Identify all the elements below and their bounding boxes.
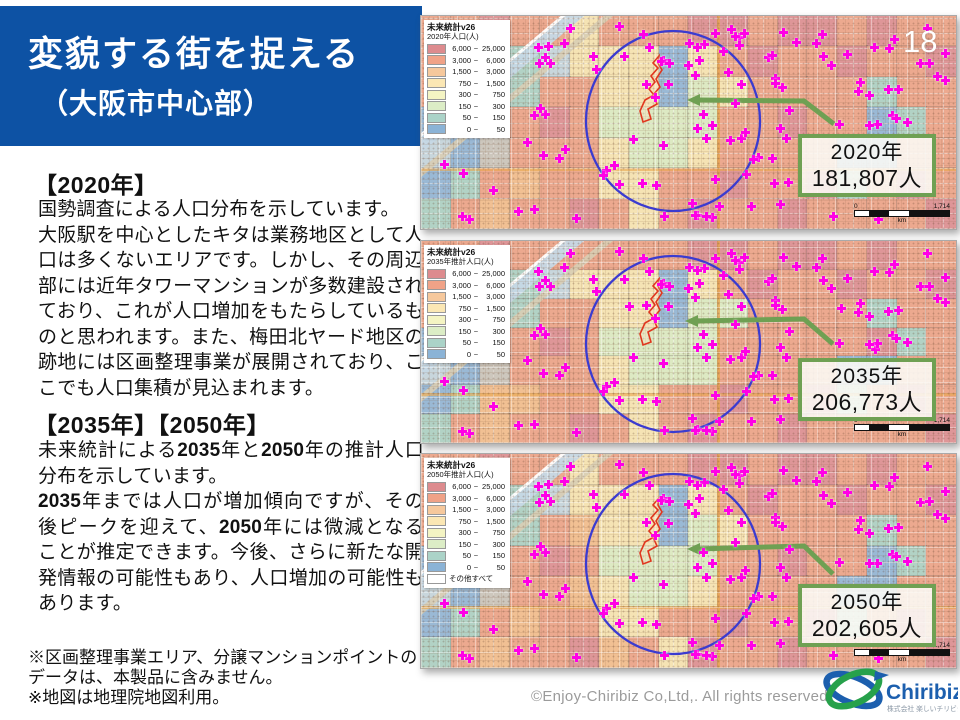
legend-range-to: 1,500 xyxy=(481,79,505,88)
condo-point-marker xyxy=(719,271,728,280)
legend-swatch xyxy=(427,574,446,584)
condo-point-marker xyxy=(873,559,882,568)
condo-point-marker xyxy=(726,136,735,145)
legend-row: 300~750 xyxy=(427,527,507,539)
condo-point-marker xyxy=(735,479,744,488)
condo-point-marker xyxy=(489,625,498,634)
condo-point-marker xyxy=(530,205,539,214)
condo-point-marker xyxy=(458,427,467,436)
condo-point-marker xyxy=(555,592,564,601)
condo-point-marker xyxy=(560,39,569,48)
scale-bar: 0 1,714 km xyxy=(854,203,950,224)
condo-point-marker xyxy=(856,516,865,525)
legend-range-to: 1,500 xyxy=(481,304,505,313)
condo-point-marker xyxy=(884,524,893,533)
condo-point-marker xyxy=(843,488,852,497)
legend-other-label: その他すべて xyxy=(449,573,493,584)
condo-point-marker xyxy=(684,61,693,70)
condo-point-marker xyxy=(652,181,661,190)
legend-swatch xyxy=(427,269,446,279)
legend-row: 150~300 xyxy=(427,539,507,551)
condo-point-marker xyxy=(610,161,619,170)
callout-year: 2035年 xyxy=(831,365,904,389)
condo-point-marker xyxy=(870,481,879,490)
slide-title: 変貌する街を捉える xyxy=(28,26,360,77)
condo-point-marker xyxy=(530,644,539,653)
condo-point-marker xyxy=(534,43,543,52)
map-2050: 未来統計v26 2050年推計人口(人) 6,000~25,0003,000~6… xyxy=(420,453,957,669)
condo-point-marker xyxy=(941,76,950,85)
condo-point-marker xyxy=(894,523,903,532)
condo-point-marker xyxy=(784,178,793,187)
condo-point-marker xyxy=(768,51,777,60)
condo-point-marker xyxy=(776,415,785,424)
legend-range-to: 6,000 xyxy=(481,494,505,503)
condo-point-marker xyxy=(827,499,836,508)
condo-point-marker xyxy=(843,274,852,283)
condo-point-marker xyxy=(865,91,874,100)
condo-point-marker xyxy=(514,421,523,430)
condo-point-marker xyxy=(530,420,539,429)
condo-point-marker xyxy=(865,312,874,321)
population-callout: 2020年 181,807人 xyxy=(798,134,936,197)
condo-point-marker xyxy=(691,509,700,518)
condo-point-marker xyxy=(615,619,624,628)
condo-point-marker xyxy=(747,202,756,211)
condo-point-marker xyxy=(708,121,717,130)
condo-point-marker xyxy=(770,395,779,404)
legend-swatch xyxy=(427,505,446,515)
scale-ratio: 1,714 xyxy=(934,642,950,649)
legend-swatch xyxy=(427,67,446,77)
condo-point-marker xyxy=(659,359,668,368)
section-2020-heading: 【2020年】 xyxy=(34,166,158,200)
legend-rows: 6,000~25,0003,000~6,0001,500~3,000750~1,… xyxy=(427,43,507,135)
condo-point-marker xyxy=(737,80,746,89)
section-2020-body: 国勢調査による人口分布を示しています。大阪駅を中心としたキタは業務地区として人口… xyxy=(38,197,424,401)
legend-range-to: 25,000 xyxy=(481,269,505,278)
condo-point-marker xyxy=(741,566,750,575)
condo-point-marker xyxy=(784,394,793,403)
legend-swatch xyxy=(427,280,446,290)
condo-point-marker xyxy=(458,651,467,660)
condo-point-marker xyxy=(566,462,575,471)
legend-range-from: 150 xyxy=(449,102,471,111)
condo-point-marker xyxy=(854,87,863,96)
legend-row: 300~750 xyxy=(427,314,507,326)
condo-point-marker xyxy=(592,65,601,74)
condo-point-marker xyxy=(776,639,785,648)
scale-bar-graphic xyxy=(854,210,950,217)
condo-point-marker xyxy=(819,491,828,500)
condo-point-marker xyxy=(890,35,899,44)
legend-range-separator: ~ xyxy=(471,56,481,65)
condo-point-marker xyxy=(695,494,704,503)
condo-point-marker xyxy=(776,563,785,572)
legend-range-to: 50 xyxy=(481,125,505,134)
condo-point-marker xyxy=(715,202,724,211)
chiribiz-logo: Chiribiz 株式会社 楽しいチリビジ xyxy=(820,662,958,718)
condo-point-marker xyxy=(711,467,720,476)
condo-point-marker xyxy=(749,155,758,164)
condo-point-marker xyxy=(693,266,702,275)
condo-point-marker xyxy=(771,301,780,310)
condo-point-marker xyxy=(854,308,863,317)
condo-point-marker xyxy=(691,426,700,435)
condo-point-marker xyxy=(660,651,669,660)
condo-point-marker xyxy=(854,525,863,534)
condo-point-marker xyxy=(711,29,720,38)
legend-range-to: 300 xyxy=(481,327,505,336)
condo-point-marker xyxy=(615,396,624,405)
legend-range-from: 3,000 xyxy=(449,494,471,503)
legend-range-from: 6,000 xyxy=(449,482,471,491)
condo-point-marker xyxy=(629,135,638,144)
legend-range-separator: ~ xyxy=(471,102,481,111)
legend-range-from: 50 xyxy=(449,338,471,347)
condo-point-marker xyxy=(870,43,879,52)
condo-point-marker xyxy=(892,114,901,123)
condo-point-marker xyxy=(560,477,569,486)
legend-range-from: 300 xyxy=(449,315,471,324)
condo-point-marker xyxy=(560,263,569,272)
condo-point-marker xyxy=(693,481,702,490)
legend-row-other: その他すべて xyxy=(427,573,507,585)
condo-point-marker xyxy=(776,343,785,352)
legend-range-separator: ~ xyxy=(471,304,481,313)
legend-swatch xyxy=(427,90,446,100)
condo-point-marker xyxy=(768,371,777,380)
condo-point-marker xyxy=(539,590,548,599)
condo-point-marker xyxy=(711,254,720,263)
legend-range-to: 750 xyxy=(481,315,505,324)
condo-point-marker xyxy=(695,279,704,288)
footnotes: ※区画整理事業エリア、分譲マンションポイントのデータは、本製品に含みません。※地… xyxy=(28,648,428,708)
condo-point-marker xyxy=(740,467,749,476)
legend-range-from: 0 xyxy=(449,125,471,134)
legend-row: 50~150 xyxy=(427,112,507,124)
condo-point-marker xyxy=(749,594,758,603)
condo-point-marker xyxy=(715,417,724,426)
condo-point-marker xyxy=(941,49,950,58)
condo-point-marker xyxy=(645,43,654,52)
condo-point-marker xyxy=(737,302,746,311)
scale-unit: km xyxy=(854,656,950,663)
slide: 変貌する街を捉える （大阪市中心部） 18 【2020年】 国勢調査による人口分… xyxy=(0,0,960,720)
condo-point-marker xyxy=(892,552,901,561)
condo-point-marker xyxy=(925,59,934,68)
condo-point-marker xyxy=(742,609,751,618)
legend-swatch xyxy=(427,78,446,88)
legend-range-separator: ~ xyxy=(471,269,481,278)
legend-swatch xyxy=(427,113,446,123)
logo-swirl-icon xyxy=(822,665,889,714)
legend-rows: 6,000~25,0003,000~6,0001,500~3,000750~1,… xyxy=(427,481,507,585)
legend-range-from: 0 xyxy=(449,350,471,359)
legend-range-separator: ~ xyxy=(471,563,481,572)
condo-point-marker xyxy=(742,387,751,396)
condo-point-marker xyxy=(885,44,894,53)
condo-point-marker xyxy=(665,59,674,68)
condo-point-marker xyxy=(702,651,711,660)
condo-point-marker xyxy=(693,124,702,133)
condo-point-marker xyxy=(731,320,740,329)
condo-point-marker xyxy=(785,327,794,336)
condo-point-marker xyxy=(835,558,844,567)
legend-row: 0~50 xyxy=(427,124,507,136)
condo-point-marker xyxy=(440,377,449,386)
legend-swatch xyxy=(427,493,446,503)
legend-range-to: 300 xyxy=(481,540,505,549)
legend-row: 0~50 xyxy=(427,349,507,361)
condo-point-marker xyxy=(555,371,564,380)
condo-point-marker xyxy=(534,267,543,276)
legend-range-from: 1,500 xyxy=(449,505,471,514)
condo-point-marker xyxy=(651,531,660,540)
legend-title: 未来統計v26 xyxy=(427,247,507,257)
condo-point-marker xyxy=(779,253,788,262)
legend-row: 3,000~6,000 xyxy=(427,493,507,505)
legend-range-separator: ~ xyxy=(471,292,481,301)
legend-range-from: 750 xyxy=(449,79,471,88)
condo-point-marker xyxy=(784,617,793,626)
condo-point-marker xyxy=(699,548,708,557)
legend-row: 150~300 xyxy=(427,101,507,113)
condo-point-marker xyxy=(539,151,548,160)
condo-point-marker xyxy=(724,290,733,299)
condo-point-marker xyxy=(865,529,874,538)
legend-swatch xyxy=(427,551,446,561)
condo-point-marker xyxy=(779,466,788,475)
legend-range-from: 150 xyxy=(449,540,471,549)
condo-point-marker xyxy=(664,80,673,89)
legend-range-separator: ~ xyxy=(471,551,481,560)
condo-point-marker xyxy=(458,212,467,221)
condo-point-marker xyxy=(768,592,777,601)
condo-point-marker xyxy=(699,110,708,119)
condo-point-marker xyxy=(642,80,651,89)
condo-point-marker xyxy=(782,573,791,582)
legend-range-to: 150 xyxy=(481,338,505,347)
condo-point-marker xyxy=(731,99,740,108)
logo-subtext: 株式会社 楽しいチリビジ xyxy=(887,704,958,713)
scale-bar-graphic xyxy=(854,649,950,656)
condo-point-marker xyxy=(642,518,651,527)
legend-range-from: 3,000 xyxy=(449,56,471,65)
legend-range-to: 6,000 xyxy=(481,56,505,65)
condo-point-marker xyxy=(771,518,780,527)
condo-point-marker xyxy=(923,462,932,471)
legend-range-to: 150 xyxy=(481,551,505,560)
condo-point-marker xyxy=(865,121,874,130)
condo-point-marker xyxy=(489,402,498,411)
condo-point-marker xyxy=(735,265,744,274)
condo-point-marker xyxy=(544,42,553,51)
condo-point-marker xyxy=(523,138,532,147)
condo-point-marker xyxy=(639,468,648,477)
condo-point-marker xyxy=(925,497,934,506)
condo-point-marker xyxy=(566,24,575,33)
condo-point-marker xyxy=(711,175,720,184)
condo-point-marker xyxy=(885,482,894,491)
condo-point-marker xyxy=(702,353,711,362)
map-2035: 未来統計v26 2035年推計人口(人) 6,000~25,0003,000~6… xyxy=(420,240,957,444)
condo-point-marker xyxy=(615,180,624,189)
condo-point-marker xyxy=(544,480,553,489)
legend-swatch xyxy=(427,516,446,526)
condo-point-marker xyxy=(620,490,629,499)
condo-point-marker xyxy=(572,214,581,223)
condo-point-marker xyxy=(523,577,532,586)
section-2035-2050-heading: 【2035年】【2050年】 xyxy=(34,406,270,440)
condo-point-marker xyxy=(541,276,550,285)
condo-point-marker xyxy=(695,56,704,65)
callout-population: 202,605人 xyxy=(812,615,922,641)
condo-point-marker xyxy=(691,650,700,659)
legend-row: 750~1,500 xyxy=(427,516,507,528)
condo-point-marker xyxy=(489,186,498,195)
condo-point-marker xyxy=(615,460,624,469)
condo-point-marker xyxy=(660,212,669,221)
condo-point-marker xyxy=(719,485,728,494)
condo-point-marker xyxy=(835,120,844,129)
condo-point-marker xyxy=(589,52,598,61)
legend-range-separator: ~ xyxy=(471,327,481,336)
page-number: 18 xyxy=(903,24,937,60)
condo-point-marker xyxy=(933,510,942,519)
condo-point-marker xyxy=(835,339,844,348)
condo-point-marker xyxy=(726,575,735,584)
condo-point-marker xyxy=(768,489,777,498)
condo-point-marker xyxy=(818,468,827,477)
condo-point-marker xyxy=(440,599,449,608)
condo-point-marker xyxy=(941,514,950,523)
condo-point-marker xyxy=(747,417,756,426)
condo-point-marker xyxy=(856,78,865,87)
condo-point-marker xyxy=(589,490,598,499)
condo-point-marker xyxy=(693,343,702,352)
condo-point-marker xyxy=(925,282,934,291)
condo-point-marker xyxy=(770,618,779,627)
condo-point-marker xyxy=(536,104,545,113)
legend-range-from: 50 xyxy=(449,113,471,122)
condo-point-marker xyxy=(726,355,735,364)
callout-year: 2050年 xyxy=(831,591,904,615)
logo-text: Chiribiz xyxy=(886,681,958,704)
legend-range-to: 50 xyxy=(481,350,505,359)
legend-swatch xyxy=(427,303,446,313)
legend-subtitle: 2035年推計人口(人) xyxy=(427,257,507,266)
legend-rows: 6,000~25,0003,000~6,0001,500~3,000750~1,… xyxy=(427,268,507,360)
legend-range-from: 50 xyxy=(449,551,471,560)
legend-range-from: 1,500 xyxy=(449,292,471,301)
legend-row: 6,000~25,000 xyxy=(427,481,507,493)
condo-point-marker xyxy=(740,29,749,38)
condo-point-marker xyxy=(572,653,581,662)
condo-point-marker xyxy=(610,599,619,608)
condo-point-marker xyxy=(664,302,673,311)
condo-point-marker xyxy=(903,118,912,127)
legend-range-from: 150 xyxy=(449,327,471,336)
condo-point-marker xyxy=(731,538,740,547)
condo-point-marker xyxy=(629,353,638,362)
legend-range-from: 3,000 xyxy=(449,281,471,290)
legend-range-separator: ~ xyxy=(471,482,481,491)
legend-row: 300~750 xyxy=(427,89,507,101)
condo-point-marker xyxy=(642,301,651,310)
condo-point-marker xyxy=(610,378,619,387)
condo-point-marker xyxy=(459,608,468,617)
condo-point-marker xyxy=(555,154,564,163)
condo-point-marker xyxy=(660,426,669,435)
condo-point-marker xyxy=(719,47,728,56)
condo-point-marker xyxy=(741,128,750,137)
legend-range-separator: ~ xyxy=(471,540,481,549)
condo-point-marker xyxy=(785,545,794,554)
condo-point-marker xyxy=(933,72,942,81)
condo-point-marker xyxy=(708,340,717,349)
condo-point-marker xyxy=(459,169,468,178)
condo-point-marker xyxy=(629,573,638,582)
condo-point-marker xyxy=(702,426,711,435)
legend-range-separator: ~ xyxy=(471,281,481,290)
condo-point-marker xyxy=(534,482,543,491)
legend-range-separator: ~ xyxy=(471,505,481,514)
condo-point-marker xyxy=(941,487,950,496)
condo-point-marker xyxy=(651,314,660,323)
legend-swatch xyxy=(427,326,446,336)
condo-point-marker xyxy=(819,276,828,285)
legend-range-separator: ~ xyxy=(471,517,481,526)
legend-row: 150~300 xyxy=(427,326,507,338)
condo-point-marker xyxy=(702,573,711,582)
condo-point-marker xyxy=(620,275,629,284)
scale-ratio: 1,714 xyxy=(934,203,950,210)
condo-point-marker xyxy=(782,353,791,362)
legend-swatch xyxy=(427,528,446,538)
legend-range-to: 25,000 xyxy=(481,44,505,53)
condo-point-marker xyxy=(749,372,758,381)
condo-point-marker xyxy=(770,179,779,188)
condo-point-marker xyxy=(592,503,601,512)
legend-row: 50~150 xyxy=(427,337,507,349)
scale-bar-graphic xyxy=(854,424,950,431)
condo-point-marker xyxy=(941,298,950,307)
condo-point-marker xyxy=(638,395,647,404)
slide-subtitle: （大阪市中心部） xyxy=(40,82,272,122)
legend-row: 50~150 xyxy=(427,550,507,562)
legend-row: 0~50 xyxy=(427,562,507,574)
condo-point-marker xyxy=(440,160,449,169)
legend-range-to: 6,000 xyxy=(481,281,505,290)
condo-point-marker xyxy=(639,254,648,263)
condo-point-marker xyxy=(541,491,550,500)
legend-swatch xyxy=(427,101,446,111)
legend-range-from: 0 xyxy=(449,563,471,572)
legend-range-to: 150 xyxy=(481,113,505,122)
legend-range-from: 750 xyxy=(449,517,471,526)
condo-point-marker xyxy=(792,476,801,485)
condo-point-marker xyxy=(514,646,523,655)
copyright: ©Enjoy-Chiribiz Co,Ltd,. All rights rese… xyxy=(531,688,832,705)
condo-point-marker xyxy=(638,179,647,188)
condo-point-marker xyxy=(792,262,801,271)
condo-point-marker xyxy=(665,497,674,506)
condo-point-marker xyxy=(665,282,674,291)
condo-point-marker xyxy=(884,307,893,316)
condo-point-marker xyxy=(884,85,893,94)
legend-range-separator: ~ xyxy=(471,338,481,347)
